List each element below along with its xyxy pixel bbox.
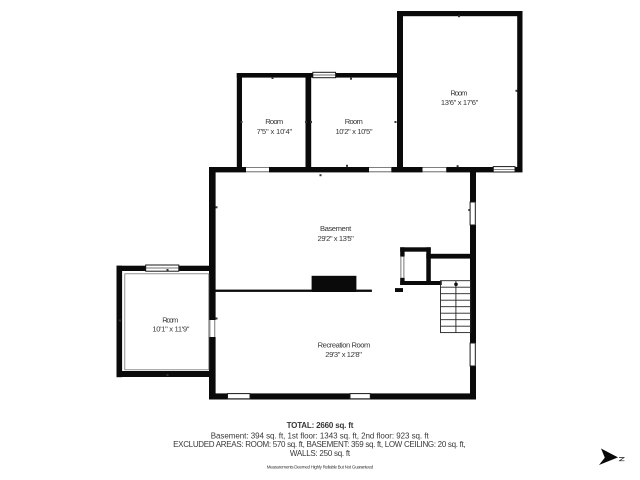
- svg-text:Room: Room: [450, 89, 467, 98]
- svg-text:Basement: 394 sq. ft, 1st floo: Basement: 394 sq. ft, 1st floor: 1343 sq…: [211, 431, 430, 440]
- svg-text:Room: Room: [345, 117, 363, 126]
- svg-text:29'2" x 13'5": 29'2" x 13'5": [318, 234, 355, 243]
- svg-text:Measurements Deemed Highly Rel: Measurements Deemed Highly Reliable But …: [267, 464, 374, 469]
- svg-text:Room: Room: [265, 117, 283, 126]
- svg-text:Basement: Basement: [320, 224, 352, 233]
- svg-text:29'3" x 12'8": 29'3" x 12'8": [325, 350, 362, 359]
- svg-text:13'6" x 17'6": 13'6" x 17'6": [441, 98, 479, 107]
- svg-text:WALLS: 250 sq. ft: WALLS: 250 sq. ft: [290, 449, 351, 458]
- svg-text:10'1" x 11'9": 10'1" x 11'9": [152, 325, 189, 334]
- svg-text:7'5" x 10'4": 7'5" x 10'4": [257, 127, 293, 136]
- svg-text:Room: Room: [162, 316, 178, 325]
- svg-text:EXCLUDED AREAS: ROOM: 570 sq.: EXCLUDED AREAS: ROOM: 570 sq. ft, BASEME…: [173, 440, 465, 449]
- svg-text:10'2" x 10'5": 10'2" x 10'5": [335, 127, 372, 136]
- svg-text:TOTAL: 2660 sq. ft: TOTAL: 2660 sq. ft: [287, 421, 354, 430]
- svg-text:Recreation Room: Recreation Room: [318, 341, 371, 350]
